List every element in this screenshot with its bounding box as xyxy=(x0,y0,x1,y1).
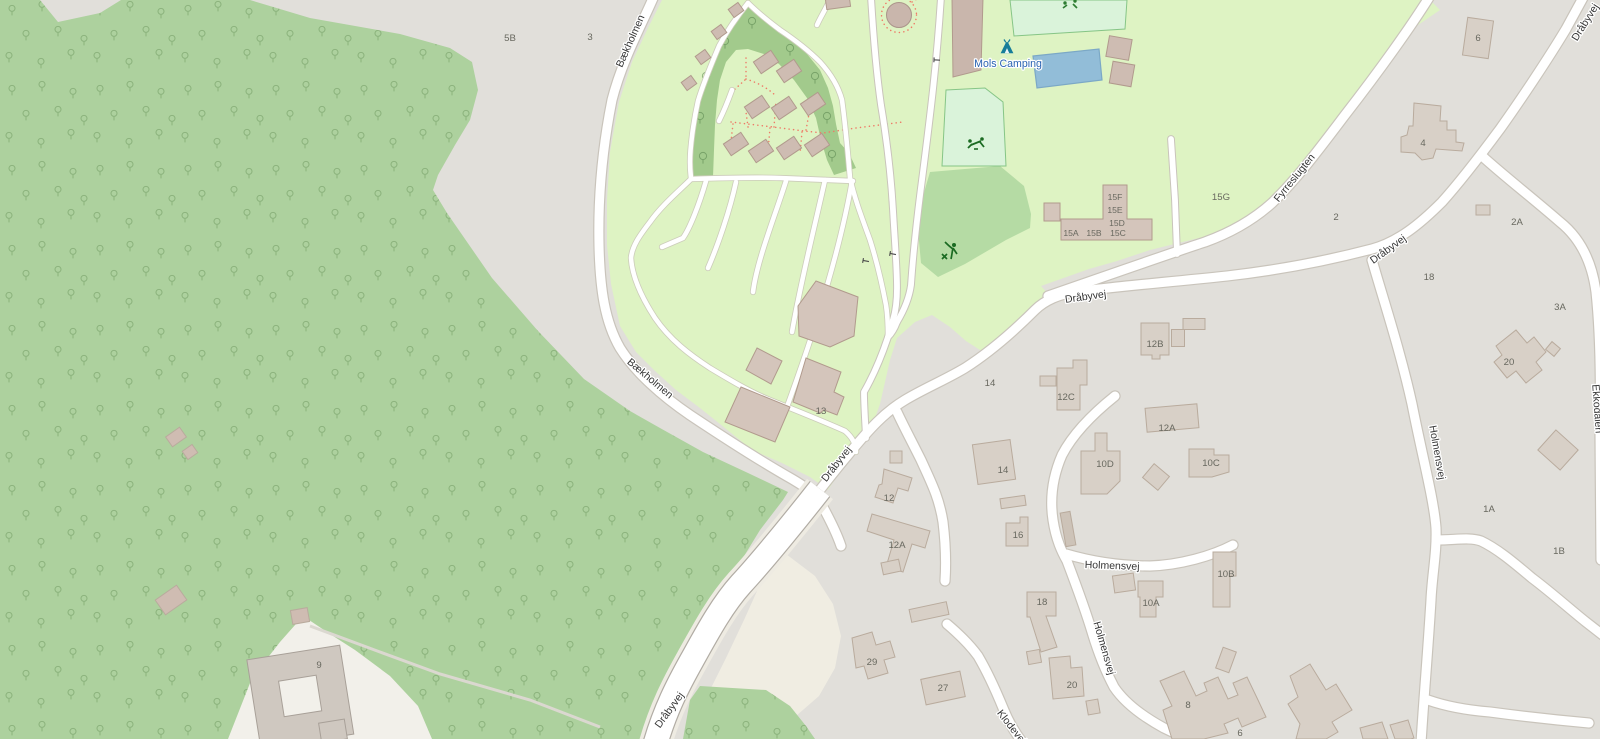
svg-text:3: 3 xyxy=(587,32,592,43)
svg-text:12B: 12B xyxy=(1146,339,1163,350)
svg-text:27: 27 xyxy=(938,683,949,694)
svg-text:12C: 12C xyxy=(1057,392,1075,403)
svg-text:6: 6 xyxy=(1237,728,1242,739)
svg-text:10A: 10A xyxy=(1142,598,1160,609)
svg-text:29: 29 xyxy=(867,657,878,668)
svg-text:15C: 15C xyxy=(1110,228,1126,238)
svg-text:15E: 15E xyxy=(1107,205,1123,215)
svg-text:Mols Camping: Mols Camping xyxy=(974,58,1042,70)
svg-text:16: 16 xyxy=(1013,530,1024,541)
svg-text:1B: 1B xyxy=(1553,546,1565,557)
svg-text:3A: 3A xyxy=(1554,302,1566,313)
svg-text:10B: 10B xyxy=(1217,569,1234,580)
svg-text:8: 8 xyxy=(1185,700,1190,711)
svg-text:15D: 15D xyxy=(1109,218,1125,228)
svg-text:10D: 10D xyxy=(1096,459,1114,470)
svg-text:15B: 15B xyxy=(1086,228,1102,238)
svg-text:20: 20 xyxy=(1067,680,1078,691)
svg-text:4: 4 xyxy=(1420,138,1426,149)
svg-text:12A: 12A xyxy=(1158,423,1176,434)
svg-text:18: 18 xyxy=(1424,272,1435,283)
svg-text:13: 13 xyxy=(816,406,827,417)
svg-text:9: 9 xyxy=(316,660,321,671)
svg-text:2: 2 xyxy=(1333,212,1338,223)
svg-text:15G: 15G xyxy=(1212,192,1230,203)
svg-text:18: 18 xyxy=(1037,597,1048,608)
svg-text:12: 12 xyxy=(884,493,895,504)
svg-text:Holmensvej: Holmensvej xyxy=(1084,559,1139,573)
svg-text:12A: 12A xyxy=(888,540,906,551)
svg-text:14: 14 xyxy=(998,465,1009,476)
svg-text:15A: 15A xyxy=(1063,228,1079,238)
svg-text:10C: 10C xyxy=(1202,458,1220,469)
svg-text:2A: 2A xyxy=(1511,217,1523,228)
svg-text:1A: 1A xyxy=(1483,504,1495,515)
svg-text:15F: 15F xyxy=(1108,192,1123,202)
svg-text:5B: 5B xyxy=(504,33,516,44)
svg-text:20: 20 xyxy=(1504,357,1515,368)
svg-text:6: 6 xyxy=(1475,33,1480,44)
svg-text:14: 14 xyxy=(985,378,996,389)
